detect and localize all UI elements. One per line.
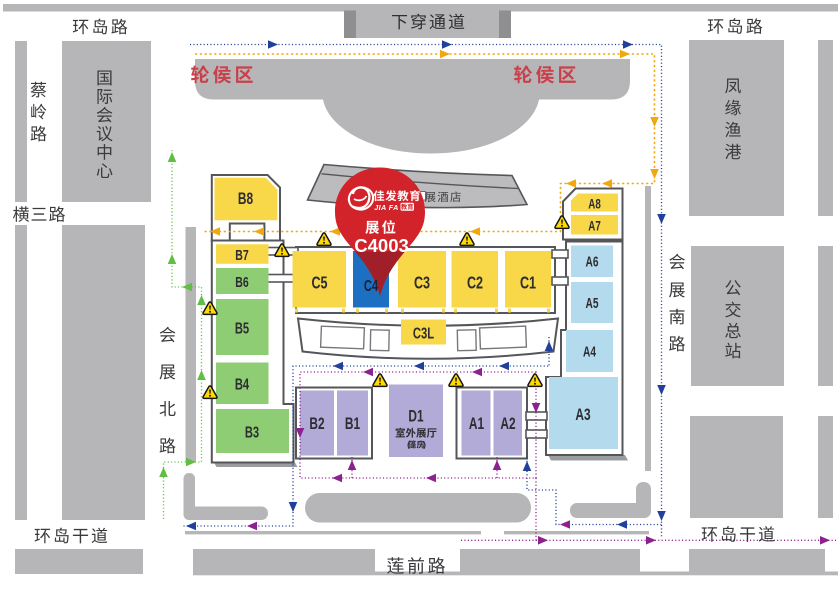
svg-text:B6: B6 xyxy=(235,273,248,290)
svg-text:C3: C3 xyxy=(414,273,430,293)
svg-text:(: ( xyxy=(407,439,410,449)
svg-text:C5: C5 xyxy=(311,273,327,293)
svg-text:A1: A1 xyxy=(469,415,484,434)
svg-text:B2: B2 xyxy=(309,415,324,434)
svg-text:B3: B3 xyxy=(245,423,260,442)
svg-text:A4: A4 xyxy=(583,344,596,360)
svg-text:A7: A7 xyxy=(588,218,601,234)
svg-text:C1: C1 xyxy=(520,273,536,293)
svg-text:B1: B1 xyxy=(345,415,360,434)
svg-text:B8: B8 xyxy=(238,190,253,209)
svg-text:D1: D1 xyxy=(408,408,423,427)
svg-text:JIA FA: JIA FA xyxy=(374,203,399,212)
svg-text:A6: A6 xyxy=(586,254,599,270)
svg-text:C2: C2 xyxy=(467,273,483,293)
svg-text:B5: B5 xyxy=(235,319,250,338)
svg-text:A5: A5 xyxy=(586,295,599,311)
svg-text:A2: A2 xyxy=(500,415,515,434)
svg-text:B4: B4 xyxy=(235,375,250,394)
svg-text:C4003: C4003 xyxy=(354,235,409,256)
svg-text:C4: C4 xyxy=(364,276,379,295)
svg-text:): ) xyxy=(423,439,426,449)
svg-text:A8: A8 xyxy=(588,196,601,212)
svg-text:C3L: C3L xyxy=(413,324,434,343)
svg-text:B7: B7 xyxy=(235,246,248,263)
svg-text:A3: A3 xyxy=(575,406,590,425)
